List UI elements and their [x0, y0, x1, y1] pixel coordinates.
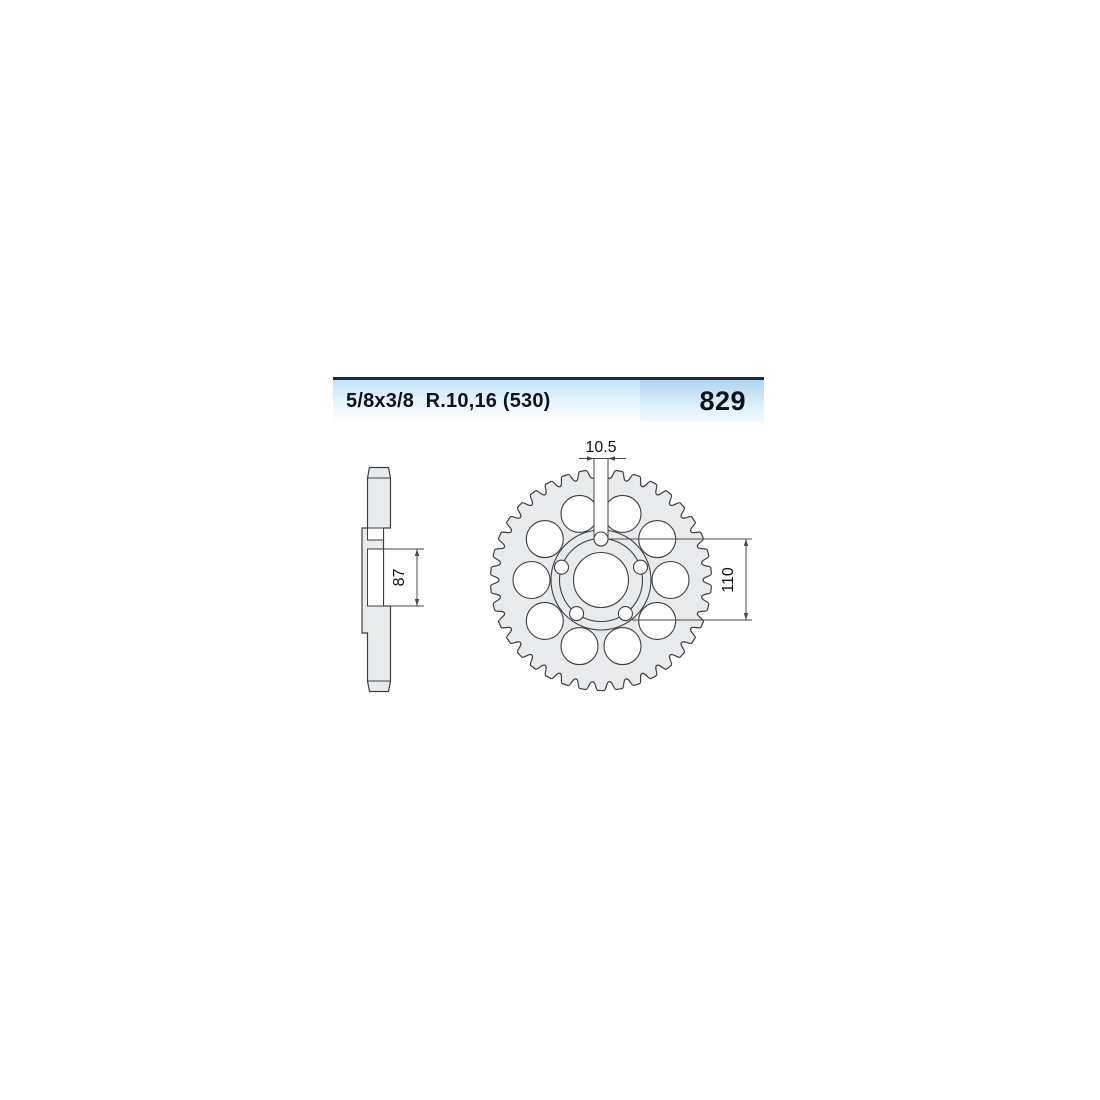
header-spec-panel: 5/8x3/8 R.10,16 (530) — [333, 380, 640, 422]
lightening-hole — [604, 495, 641, 532]
lightening-hole — [513, 562, 550, 599]
top-bolt-hole — [594, 532, 608, 546]
part-number-panel: 829 — [640, 380, 764, 422]
bolt-hole — [555, 560, 569, 574]
chain-spec-label: 5/8x3/8 R.10,16 (530) — [346, 390, 551, 413]
dimension-hub-label: 87 — [391, 569, 408, 587]
side-view-bore-band — [368, 549, 384, 606]
lightening-hole — [561, 628, 598, 665]
side-view-bolt-hole-band — [368, 528, 384, 540]
part-number-label: 829 — [699, 386, 746, 417]
bolt-hole — [618, 607, 632, 621]
lightening-hole — [639, 602, 676, 639]
lightening-hole — [652, 562, 689, 599]
lightening-hole — [561, 495, 598, 532]
header-bar: 5/8x3/8 R.10,16 (530) 829 — [333, 377, 764, 422]
lightening-hole — [526, 602, 563, 639]
bolt-hole — [570, 607, 584, 621]
bolt-hole — [634, 560, 648, 574]
lightening-hole — [604, 628, 641, 665]
dimension-bolt-hole-label: 10.5 — [585, 439, 616, 456]
dimension-bolt-circle-label: 110 — [720, 567, 737, 593]
dimension-callout-strip — [595, 458, 608, 539]
lightening-hole — [526, 521, 563, 558]
technical-drawing: 10.5 110 87 — [340, 430, 780, 720]
sprocket-side-view — [362, 468, 391, 692]
dimension-hub: 87 — [384, 549, 424, 606]
center-bore — [574, 553, 629, 608]
sprocket-drawing-svg: 10.5 110 87 — [340, 430, 780, 720]
